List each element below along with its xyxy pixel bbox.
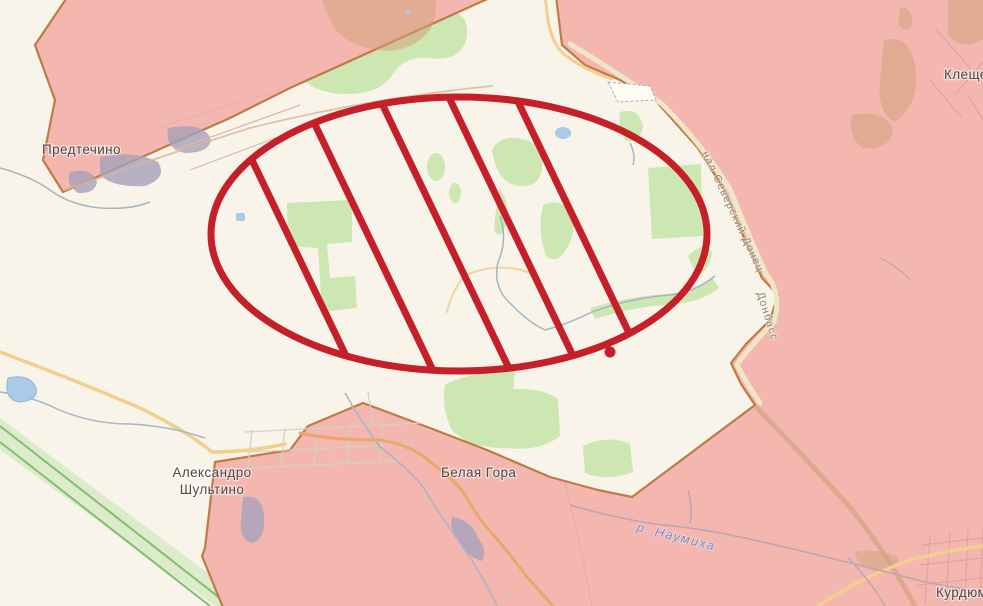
label-belaya-gora: Белая Гора xyxy=(441,465,516,480)
annotation-dot xyxy=(605,347,616,358)
map-canvas[interactable]: Предтечино Клещеевка Александро Шультино… xyxy=(0,0,983,606)
label-aleksandro: Александро xyxy=(172,465,251,480)
label-kleshcheevka: Клещеевка xyxy=(944,67,983,82)
label-shultino: Шультино xyxy=(180,482,245,497)
label-predtechino: Предтечино xyxy=(42,142,121,157)
label-kurdyumovka: Курдюмовка xyxy=(936,585,983,600)
